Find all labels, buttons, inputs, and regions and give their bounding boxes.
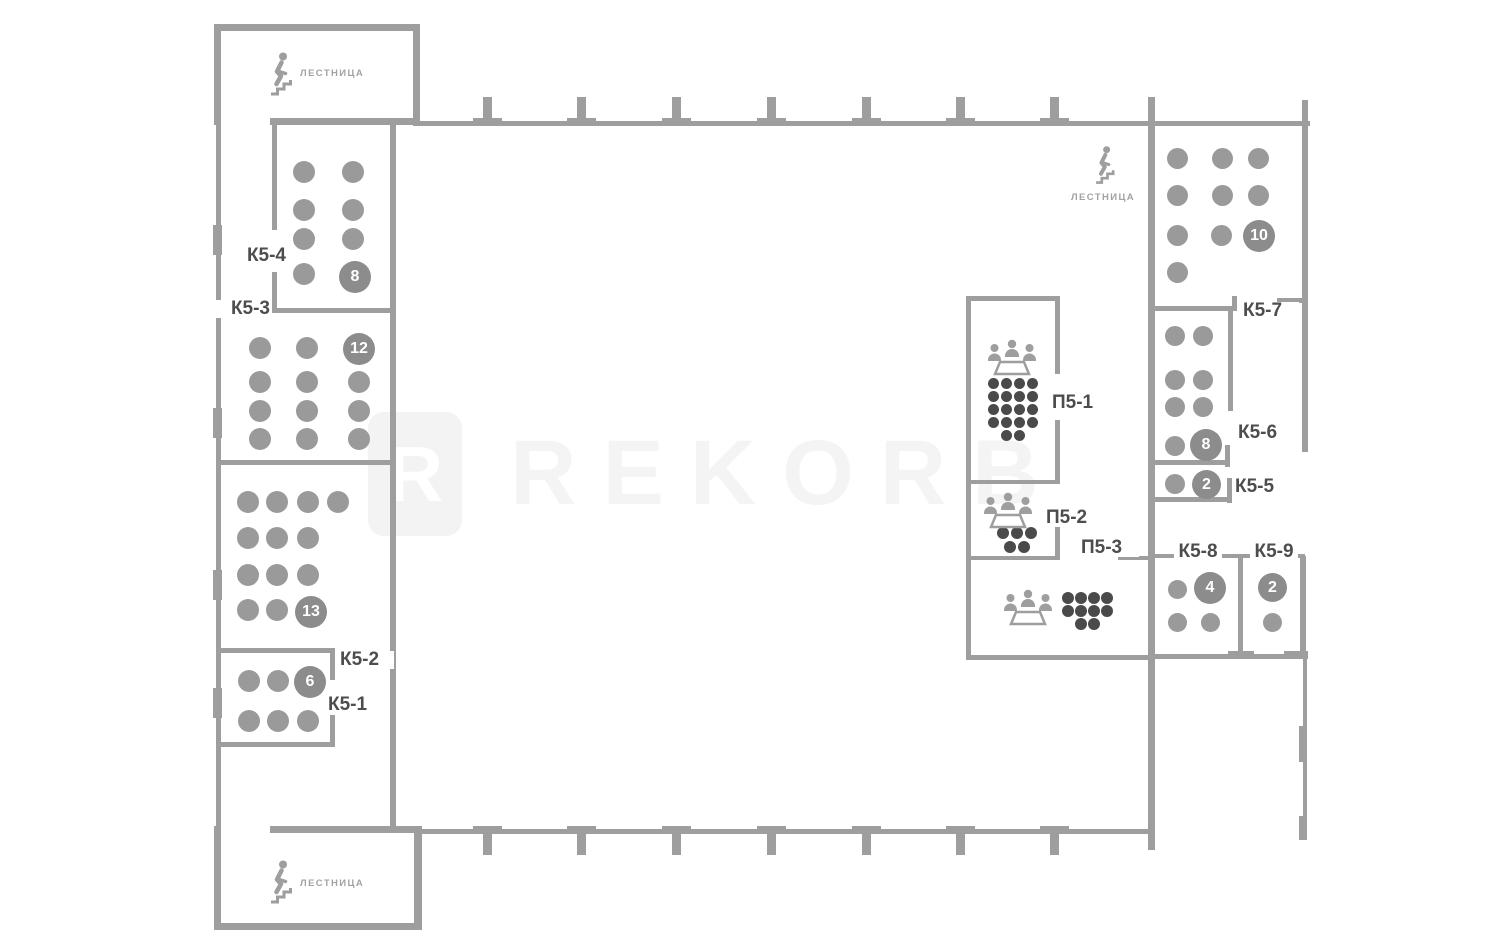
wall-segment (567, 826, 596, 833)
wall-segment (414, 826, 422, 930)
wall-segment (966, 296, 971, 560)
capacity-badge-k5-8: 4 (1194, 572, 1226, 604)
wall-segment (1152, 497, 1232, 502)
meeting-icon (986, 338, 1038, 378)
capacity-badge-k5-9: 2 (1258, 573, 1287, 602)
workstation-dot (348, 428, 370, 450)
workstation-dot (266, 527, 288, 549)
wall-segment (1055, 296, 1060, 374)
meeting-seat-dot (1001, 391, 1012, 402)
wall-segment (757, 118, 786, 125)
workstation-dot (1167, 262, 1188, 283)
workstation-dot (237, 599, 259, 621)
workstation-dot (1248, 185, 1269, 206)
workstation-dot (1212, 185, 1233, 206)
workstation-dot (342, 161, 364, 183)
wall-segment (946, 826, 975, 833)
meeting-seat-dot (1088, 592, 1100, 604)
capacity-badge-k5-5: 2 (1192, 470, 1221, 499)
workstation-dot (1201, 613, 1220, 632)
meeting-seat-dot (1018, 541, 1030, 553)
workstation-dot (327, 491, 349, 513)
wall-segment (1228, 311, 1233, 411)
room-label-p5-2: П5-2 (1044, 509, 1104, 527)
room-label-k5-8: К5-8 (1174, 543, 1222, 561)
room-label-k5-9: К5-9 (1250, 543, 1298, 561)
meeting-seat-dot (1075, 592, 1087, 604)
floor-plan: R REKORB К5-4 К5-3 К5-2 К5-1 К5-7 К5-6 К… (0, 0, 1500, 950)
wall-segment (852, 118, 881, 125)
workstation-dot (1168, 580, 1187, 599)
wall-segment (213, 688, 222, 718)
meeting-seat-dot (1014, 391, 1025, 402)
workstation-dot (249, 371, 271, 393)
wall-segment (966, 556, 1060, 560)
wall-segment (966, 655, 1152, 660)
wall-segment (272, 308, 395, 313)
meeting-seat-dot (1014, 417, 1025, 428)
capacity-badge-k5-7: 10 (1243, 220, 1275, 252)
wall-segment (1299, 726, 1307, 762)
wall-segment (270, 118, 420, 125)
meeting-seat-dot (1101, 592, 1113, 604)
workstation-dot (293, 161, 315, 183)
wall-segment (221, 460, 393, 465)
workstation-dot (297, 491, 319, 513)
wall-segment (662, 118, 691, 125)
meeting-seat-dot (1027, 391, 1038, 402)
room-label-k5-5: К5-5 (1233, 478, 1291, 496)
meeting-seat-dot (1014, 404, 1025, 415)
wall-segment (272, 125, 277, 230)
workstation-dot (238, 710, 260, 732)
meeting-seat-dot (1088, 605, 1100, 617)
workstation-dot (1167, 225, 1188, 246)
room-label-k5-1: К5-1 (326, 696, 382, 714)
workstation-dot (1193, 326, 1213, 346)
workstation-dot (297, 527, 319, 549)
workstation-dot (249, 400, 271, 422)
wall-segment (757, 826, 786, 833)
wall-segment (1238, 558, 1243, 656)
workstation-dot (267, 670, 289, 692)
workstation-dot (1248, 148, 1269, 169)
wall-segment (966, 556, 971, 660)
stairs-icon (1090, 145, 1118, 185)
meeting-seat-dot (1014, 378, 1025, 389)
wall-segment (1228, 651, 1254, 659)
meeting-seat-dot (1001, 417, 1012, 428)
wall-segment (956, 831, 965, 855)
wall-segment (1152, 460, 1230, 465)
room-k5-8[interactable] (1155, 558, 1238, 654)
room-label-k5-4: К5-4 (232, 247, 288, 265)
workstation-dot (249, 337, 271, 359)
wall-segment (1055, 526, 1060, 560)
meeting-seat-dot (1075, 605, 1087, 617)
meeting-seat-dot (1004, 541, 1016, 553)
room-k5-4[interactable] (277, 125, 390, 308)
meeting-seat-dot (1027, 378, 1038, 389)
workstation-dot (267, 710, 289, 732)
wall-segment (1040, 118, 1069, 125)
wall-segment (966, 296, 1060, 301)
workstation-dot (1167, 185, 1188, 206)
workstation-dot (237, 564, 259, 586)
workstation-dot (1211, 225, 1232, 246)
wall-segment (272, 272, 277, 313)
stairs-label-top-right: ЛЕСТНИЦА (1063, 192, 1143, 204)
meeting-seat-dot (1001, 430, 1012, 441)
wall-segment (662, 826, 691, 833)
meeting-seat-dot (1027, 404, 1038, 415)
workstation-dot (296, 428, 318, 450)
wall-segment (1050, 831, 1059, 855)
wall-segment (330, 648, 335, 680)
wall-segment (966, 480, 1060, 484)
wall-segment (946, 118, 975, 125)
workstation-dot (266, 599, 288, 621)
workstation-dot (293, 228, 315, 250)
wall-segment (221, 742, 333, 747)
workstation-dot (1193, 370, 1213, 390)
workstation-dot (237, 527, 259, 549)
wall-segment (1300, 556, 1306, 656)
stairs-label-top-left: ЛЕСТНИЦА (300, 68, 364, 80)
meeting-icon (1002, 588, 1054, 628)
wall-segment (390, 125, 396, 830)
capacity-badge-k5-2: 13 (295, 596, 327, 628)
workstation-dot (1165, 436, 1185, 456)
wall-segment (1299, 816, 1307, 840)
meeting-seat-dot (988, 391, 999, 402)
wall-segment (213, 408, 222, 438)
workstation-dot (1165, 370, 1185, 390)
wall-segment (767, 831, 776, 855)
meeting-seat-dot (1027, 417, 1038, 428)
workstation-dot (1193, 397, 1213, 417)
wall-segment (1055, 420, 1060, 483)
wall-segment (862, 831, 871, 855)
capacity-badge-k5-1: 6 (294, 666, 326, 698)
room-label-p5-1: П5-1 (1050, 394, 1110, 412)
capacity-badge-k5-6: 8 (1190, 429, 1222, 461)
capacity-badge-k5-4: 8 (339, 261, 371, 293)
wall-segment (1148, 97, 1155, 850)
workstation-dot (266, 564, 288, 586)
workstation-dot (348, 400, 370, 422)
wall-segment (214, 24, 221, 125)
wall-segment (852, 826, 881, 833)
wall-segment (1302, 100, 1308, 452)
meeting-seat-dot (1001, 404, 1012, 415)
workstation-dot (266, 491, 288, 513)
wall-segment (270, 826, 420, 833)
capacity-badge-k5-3: 12 (343, 333, 375, 365)
wall-segment (473, 826, 502, 833)
workstation-dot (293, 199, 315, 221)
room-label-p5-3: П5-3 (1079, 539, 1139, 557)
meeting-seat-dot (1062, 605, 1074, 617)
wall-segment (672, 831, 681, 855)
wall-segment (213, 225, 222, 255)
workstation-dot (348, 371, 370, 393)
meeting-seat-dot (988, 404, 999, 415)
wall-segment (1152, 554, 1176, 558)
workstation-dot (249, 428, 271, 450)
meeting-seat-dot (1062, 592, 1074, 604)
room-label-k5-2: К5-2 (338, 651, 394, 669)
workstation-dot (297, 710, 319, 732)
workstation-dot (1167, 148, 1188, 169)
room-label-k5-6: К5-6 (1236, 424, 1294, 442)
workstation-dot (1165, 397, 1185, 417)
wall-segment (214, 923, 422, 930)
wall-segment (567, 118, 596, 125)
workstation-dot (296, 337, 318, 359)
workstation-dot (293, 263, 315, 285)
workstation-dot (1263, 613, 1282, 632)
meeting-seat-dot (1088, 618, 1100, 630)
room-label-k5-7: К5-7 (1241, 302, 1299, 320)
wall-segment (213, 570, 222, 600)
wall-segment (214, 24, 420, 31)
wall-segment (473, 118, 502, 125)
workstation-dot (237, 491, 259, 513)
workstation-dot (297, 564, 319, 586)
room-p5-3[interactable] (971, 560, 1148, 655)
room-label-k5-3: К5-3 (216, 300, 272, 318)
meeting-seat-dot (1014, 430, 1025, 441)
wall-segment (221, 648, 333, 653)
workstation-dot (1212, 148, 1233, 169)
workstation-dot (342, 199, 364, 221)
meeting-icon (982, 491, 1034, 531)
workstation-dot (1168, 613, 1187, 632)
meeting-seat-dot (988, 378, 999, 389)
workstation-dot (296, 400, 318, 422)
room-p5-1[interactable] (971, 301, 1055, 480)
meeting-seat-dot (1001, 378, 1012, 389)
wall-segment (1155, 306, 1235, 311)
workstation-dot (1165, 474, 1185, 494)
wall-segment (413, 24, 420, 125)
stairs-label-bottom-left: ЛЕСТНИЦА (300, 878, 364, 890)
workstation-dot (296, 371, 318, 393)
workstation-dot (1165, 326, 1185, 346)
meeting-seat-dot (988, 417, 999, 428)
workstation-dot (238, 670, 260, 692)
meeting-seat-dot (1101, 605, 1113, 617)
wall-segment (577, 831, 586, 855)
wall-segment (1232, 296, 1237, 311)
stairs-icon (264, 52, 296, 96)
meeting-seat-dot (1075, 618, 1087, 630)
wall-segment (1040, 826, 1069, 833)
stairs-icon (264, 860, 296, 904)
wall-segment (483, 831, 492, 855)
workstation-dot (342, 228, 364, 250)
